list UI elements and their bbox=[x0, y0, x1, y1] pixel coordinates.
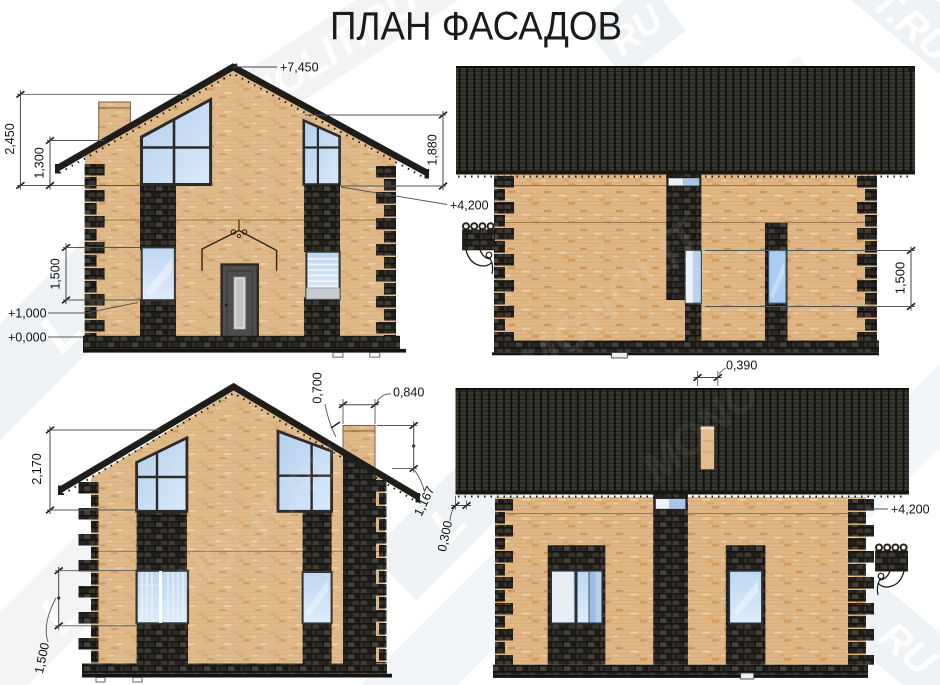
svg-text:+4,200: +4,200 bbox=[450, 199, 489, 213]
svg-text:+0,000: +0,000 bbox=[8, 331, 47, 345]
svg-text:0,700: 0,700 bbox=[311, 372, 325, 403]
svg-text:1,500: 1,500 bbox=[49, 258, 63, 289]
svg-text:1,500: 1,500 bbox=[893, 262, 908, 295]
svg-text:1,300: 1,300 bbox=[33, 147, 47, 178]
svg-text:ПЛАН ФАСАДОВ: ПЛАН ФАСАДОВ bbox=[330, 5, 622, 49]
svg-text:+7,450: +7,450 bbox=[280, 61, 319, 75]
svg-text:2,170: 2,170 bbox=[30, 453, 44, 484]
svg-text:1,880: 1,880 bbox=[426, 134, 440, 165]
svg-text:+1,000: +1,000 bbox=[8, 307, 47, 321]
svg-text:0,390: 0,390 bbox=[726, 359, 757, 373]
svg-text:2,450: 2,450 bbox=[3, 123, 17, 154]
svg-text:0,840: 0,840 bbox=[393, 386, 424, 400]
svg-text:+4,200: +4,200 bbox=[891, 503, 930, 517]
